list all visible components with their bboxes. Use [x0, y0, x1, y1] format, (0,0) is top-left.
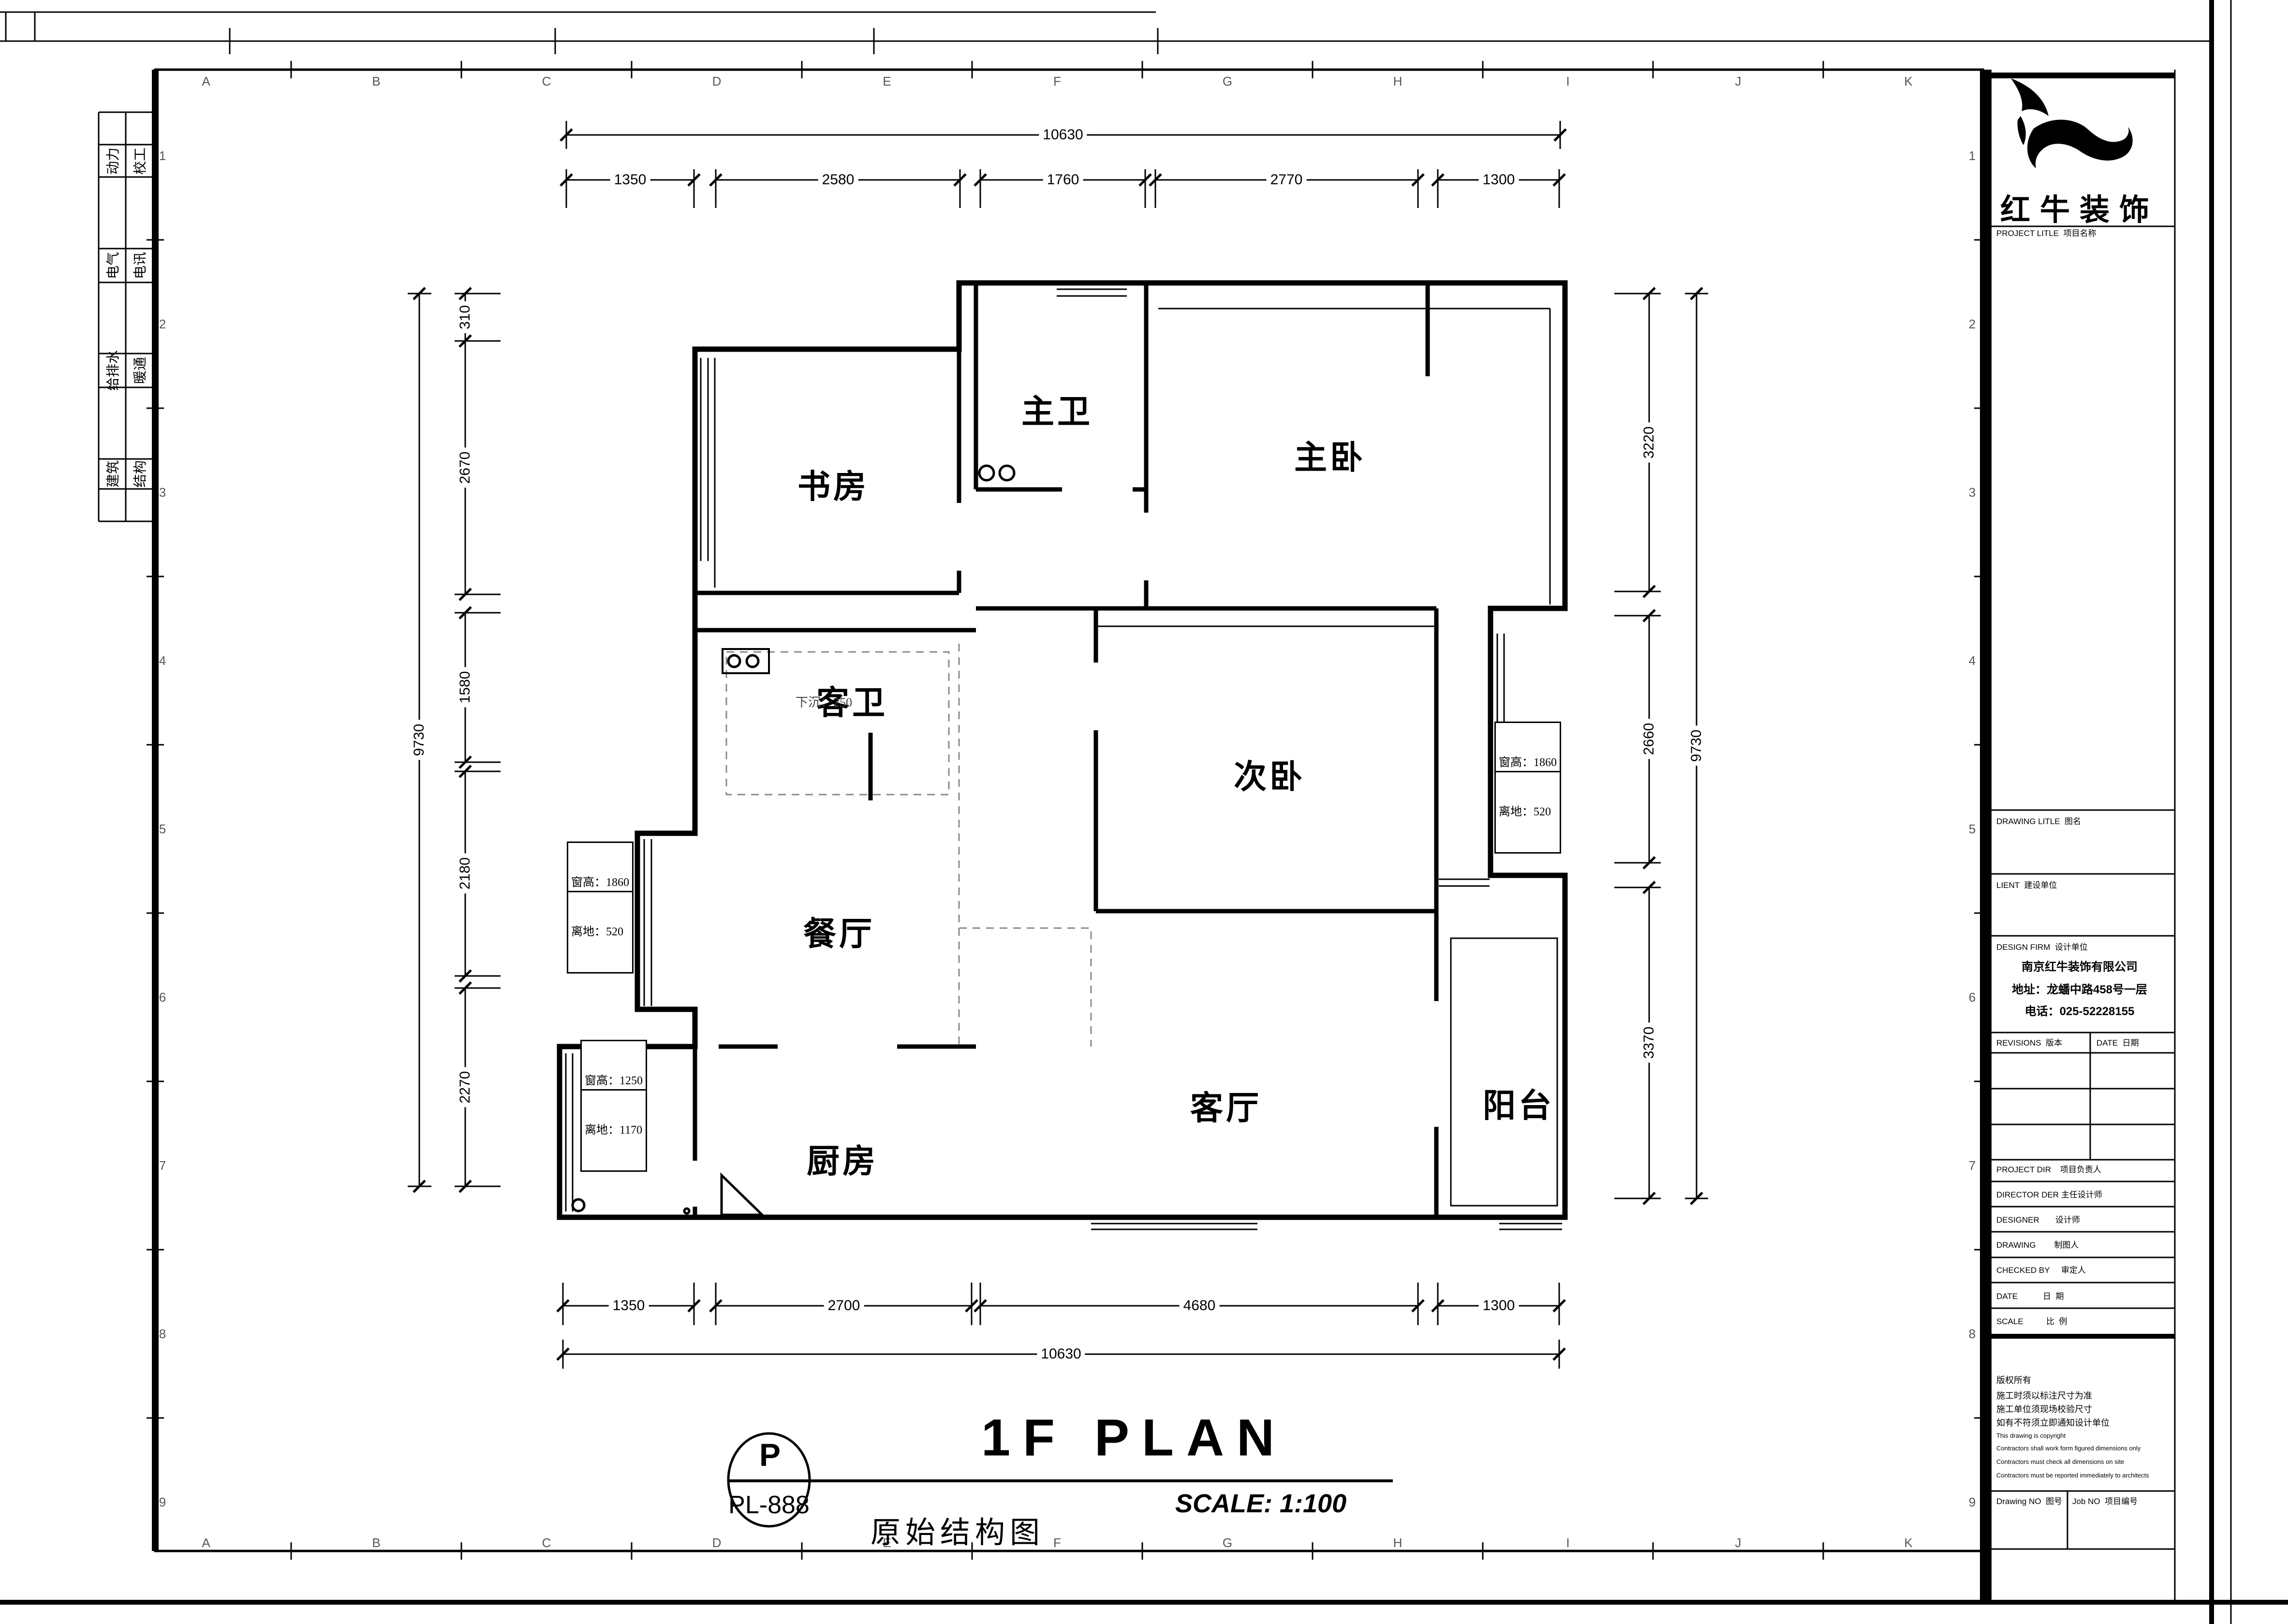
tb-checked-by: CHECKED BY 审定人: [1996, 1266, 2086, 1274]
tb-design-firm: DESIGN FIRM 设计单位: [1996, 943, 2088, 951]
window-note-bedroom: 窗高：1860 离地：520: [1494, 722, 1561, 854]
grid-col-top: J: [1735, 75, 1742, 88]
window-height-value: 窗高：1250: [582, 1073, 646, 1091]
grid-row-right: 2: [1969, 318, 1976, 330]
strip-label-power: 动力: [103, 148, 122, 175]
sheet-title-cn: 原始结构图: [871, 1508, 1045, 1551]
window-note-kitchen: 窗高：1250 离地：1170: [580, 1040, 647, 1172]
grid-row-left: 9: [159, 1496, 166, 1508]
tb-copyright-cn: 版权所有: [1996, 1376, 2031, 1385]
tb-copyright-cn: 如有不符须立即通知设计单位: [1996, 1418, 2110, 1427]
dim-left-2: 2670: [458, 448, 472, 488]
strip-label-structure: 结构: [130, 460, 149, 487]
room-label-balcony: 阳台: [1483, 1079, 1554, 1127]
dim-right-total: 9730: [1689, 726, 1704, 766]
grid-col-bottom: F: [1053, 1536, 1061, 1549]
grid-col-top: D: [712, 75, 722, 88]
tb-copyright-cn: 施工时须以标注尺寸为准: [1996, 1391, 2092, 1400]
grid-col-top: G: [1223, 75, 1232, 88]
dim-bottom-2: 2700: [824, 1299, 864, 1313]
brand-name: 红牛装饰: [2000, 185, 2159, 229]
tb-copyright-en: This drawing is copyright: [1996, 1432, 2066, 1439]
tb-copyright-en: Contractors must be reported immediately…: [1996, 1472, 2149, 1478]
grid-row-right: 6: [1969, 991, 1976, 1004]
dim-right-3: 3370: [1642, 1023, 1656, 1063]
tb-drawing-by: DRAWING 制图人: [1996, 1241, 2079, 1249]
grid-col-bottom: H: [1393, 1536, 1402, 1549]
drawing-sheet: 书房 主卫 主卧 客卫 次卧 餐厅 厨房 客厅 阳台 下沉：250 窗高：186…: [0, 0, 2288, 1624]
window-height-value: 窗高：1860: [568, 875, 632, 892]
grid-col-bottom: C: [542, 1536, 551, 1549]
strip-label-asbuilt: 校工: [130, 148, 149, 175]
room-label-living: 客厅: [1190, 1081, 1262, 1129]
grid-col-top: F: [1053, 75, 1061, 88]
dashed-beam-lines: [726, 644, 1091, 1047]
strip-label-telecom: 电讯: [130, 252, 149, 279]
titleblock-lines: [1980, 70, 2175, 1602]
grid-col-top: B: [372, 75, 380, 88]
grid-row-left: 4: [159, 654, 166, 667]
dim-bottom-1: 1350: [609, 1299, 649, 1313]
room-label-master-bedroom: 主卧: [1294, 431, 1366, 479]
tb-project-dir: PROJECT DIR 项目负责人: [1996, 1166, 2101, 1174]
sheet-scale: SCALE: 1:100: [1175, 1489, 1346, 1519]
grid-col-bottom: D: [712, 1536, 722, 1549]
window-height-value: 窗高：1860: [1496, 755, 1560, 772]
grid-row-left: 8: [159, 1328, 166, 1340]
room-label-dining: 餐厅: [803, 907, 875, 955]
dim-right-1: 3220: [1642, 423, 1656, 463]
grid-col-bottom: A: [202, 1536, 210, 1549]
grid-col-top: H: [1393, 75, 1402, 88]
sheet-tag-letter: P: [759, 1436, 781, 1473]
room-label-study: 书房: [797, 460, 869, 508]
tb-date-col: DATE 日期: [2096, 1039, 2139, 1047]
plan-linework: [0, 0, 2288, 1624]
dim-bottom-4: 1300: [1479, 1299, 1519, 1313]
grid-row-left: 5: [159, 823, 166, 835]
grid-row-right: 1: [1969, 149, 1976, 162]
dim-left-3: 1580: [458, 667, 472, 708]
grid-row-right: 8: [1969, 1328, 1976, 1340]
dim-bottom-total: 10630: [1037, 1347, 1085, 1361]
strip-label-hvac: 暖通: [130, 357, 149, 384]
grid-row-left: 1: [159, 149, 166, 162]
grid-col-top: K: [1904, 75, 1912, 88]
tb-copyright-en: Contractors shall work form figured dime…: [1996, 1445, 2140, 1451]
grid-row-left: 3: [159, 486, 166, 499]
room-label-second-bedroom: 次卧: [1234, 750, 1305, 798]
dim-right-2: 2660: [1642, 719, 1656, 759]
dim-left-total: 9730: [412, 720, 427, 760]
tb-job-no: Job NO 项目编号: [2072, 1497, 2138, 1506]
grid-col-top: I: [1566, 75, 1569, 88]
tb-firm-name: 南京红牛装饰有限公司: [2022, 961, 2138, 973]
tb-client: LIENT 建设单位: [1996, 881, 2057, 889]
tb-copyright-en: Contractors must check all dimensions on…: [1996, 1459, 2124, 1465]
grid-col-top: E: [883, 75, 891, 88]
dim-top-5: 1300: [1479, 173, 1519, 187]
room-label-master-bath: 主卫: [1021, 385, 1093, 433]
grid-row-left: 6: [159, 991, 166, 1004]
grid-col-bottom: I: [1566, 1536, 1569, 1549]
dim-bottom-3: 4680: [1180, 1299, 1220, 1313]
brand-logo-icon: [2011, 78, 2133, 168]
drawing-frame: [147, 61, 1992, 1560]
sheet-tag-code: PL-888: [728, 1491, 810, 1520]
tb-drawing-title: DRAWING LITLE 图名: [1996, 817, 2081, 826]
grid-row-right: 4: [1969, 654, 1976, 667]
sheet-title-en: 1F PLAN: [981, 1407, 1287, 1468]
dim-top-1: 1350: [610, 173, 650, 187]
dim-top-total: 10630: [1039, 128, 1087, 142]
window-sill-value: 离地：1170: [582, 1122, 646, 1138]
tb-firm-phone: 电话：025-52228155: [2025, 1006, 2135, 1018]
grid-col-bottom: K: [1904, 1536, 1912, 1549]
window-sill-value: 离地：520: [568, 924, 632, 940]
room-label-kitchen: 厨房: [807, 1135, 878, 1182]
tb-designer: DESIGNER 设计师: [1996, 1216, 2080, 1224]
grid-row-right: 7: [1969, 1159, 1976, 1172]
note-sunken-floor: 下沉：250: [796, 693, 852, 710]
tb-copyright-cn: 施工单位须现场校验尺寸: [1996, 1405, 2092, 1414]
grid-col-top: A: [202, 75, 210, 88]
tb-revisions: REVISIONS 版本: [1996, 1039, 2062, 1047]
tb-drawing-no: Drawing NO 图号: [1996, 1497, 2062, 1506]
dim-left-4: 2180: [458, 854, 472, 894]
grid-row-left: 7: [159, 1159, 166, 1172]
grid-row-right: 3: [1969, 486, 1976, 499]
grid-col-bottom: B: [372, 1536, 380, 1549]
tb-firm-address: 地址：龙蟠中路458号一层: [2012, 984, 2147, 996]
tb-date-row: DATE 日 期: [1996, 1292, 2064, 1300]
strip-label-electric: 电气: [103, 252, 122, 279]
tb-scale-row: SCALE 比 例: [1996, 1317, 2067, 1326]
tb-director: DIRECTOR DER 主任设计师: [1996, 1191, 2102, 1199]
dim-left-5: 2270: [458, 1067, 472, 1107]
grid-row-right: 9: [1969, 1496, 1976, 1508]
grid-row-right: 5: [1969, 823, 1976, 835]
dim-top-3: 1760: [1043, 173, 1083, 187]
grid-col-bottom: J: [1735, 1536, 1742, 1549]
page-border-lines: [0, 0, 2288, 1624]
strip-label-arch: 建筑: [103, 460, 122, 487]
tb-project-title: PROJECT LITLE 项目名称: [1996, 229, 2096, 237]
dim-left-1: 310: [458, 301, 472, 333]
dim-top-2: 2580: [818, 173, 858, 187]
window-note-dining: 窗高：1860 离地：520: [567, 842, 634, 974]
window-sill-value: 离地：520: [1496, 804, 1560, 820]
grid-col-top: C: [542, 75, 551, 88]
grid-row-left: 2: [159, 318, 166, 330]
grid-col-bottom: G: [1223, 1536, 1232, 1549]
dim-top-4: 2770: [1267, 173, 1307, 187]
wall-inner-faces: [715, 309, 1557, 1206]
strip-label-plumbing: 给排水: [103, 350, 122, 391]
